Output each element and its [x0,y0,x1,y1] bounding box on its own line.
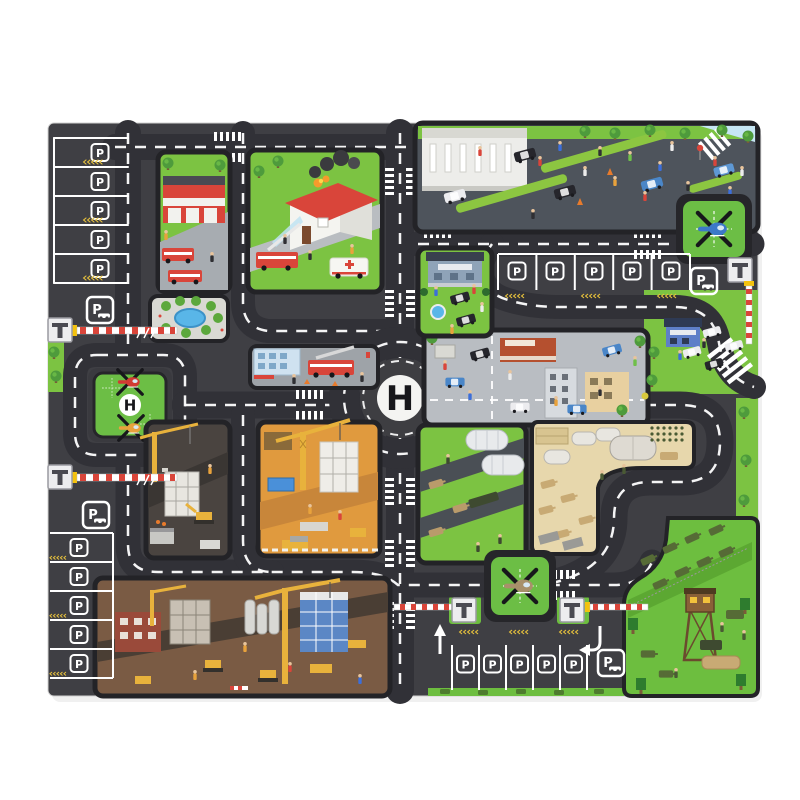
playmat-photo: P P [0,0,800,800]
military-green-scene [418,425,526,563]
ladder-truck-street-scene [250,346,378,388]
west-helipad-h-label: H [124,397,137,415]
roundabout-h-label: H [386,379,414,419]
burning-house-scene [248,150,382,292]
excavation-site-scene [95,578,390,696]
construction-dark-scene [140,422,230,558]
construction-orange-scene [258,420,380,556]
helipad-south [484,550,556,622]
fire-station-scene [158,152,230,292]
police-station-scene [418,248,492,336]
playmat-illustration: P P [0,0,800,800]
city-shops-scene [424,330,649,425]
